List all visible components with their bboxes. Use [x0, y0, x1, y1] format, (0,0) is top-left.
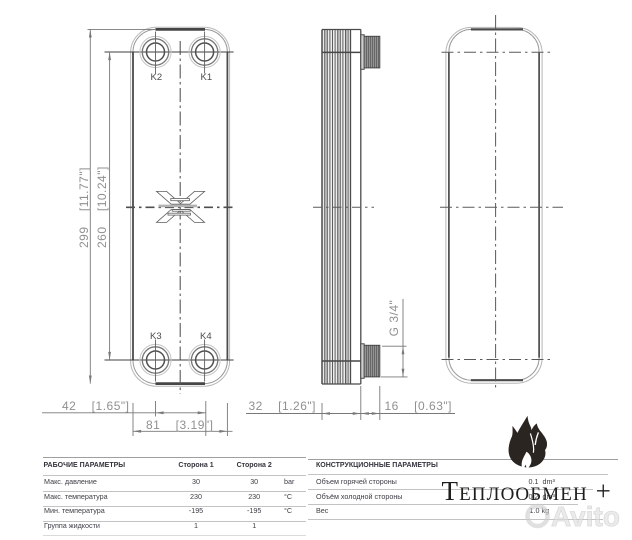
svg-text:Avito: Avito: [551, 501, 620, 532]
